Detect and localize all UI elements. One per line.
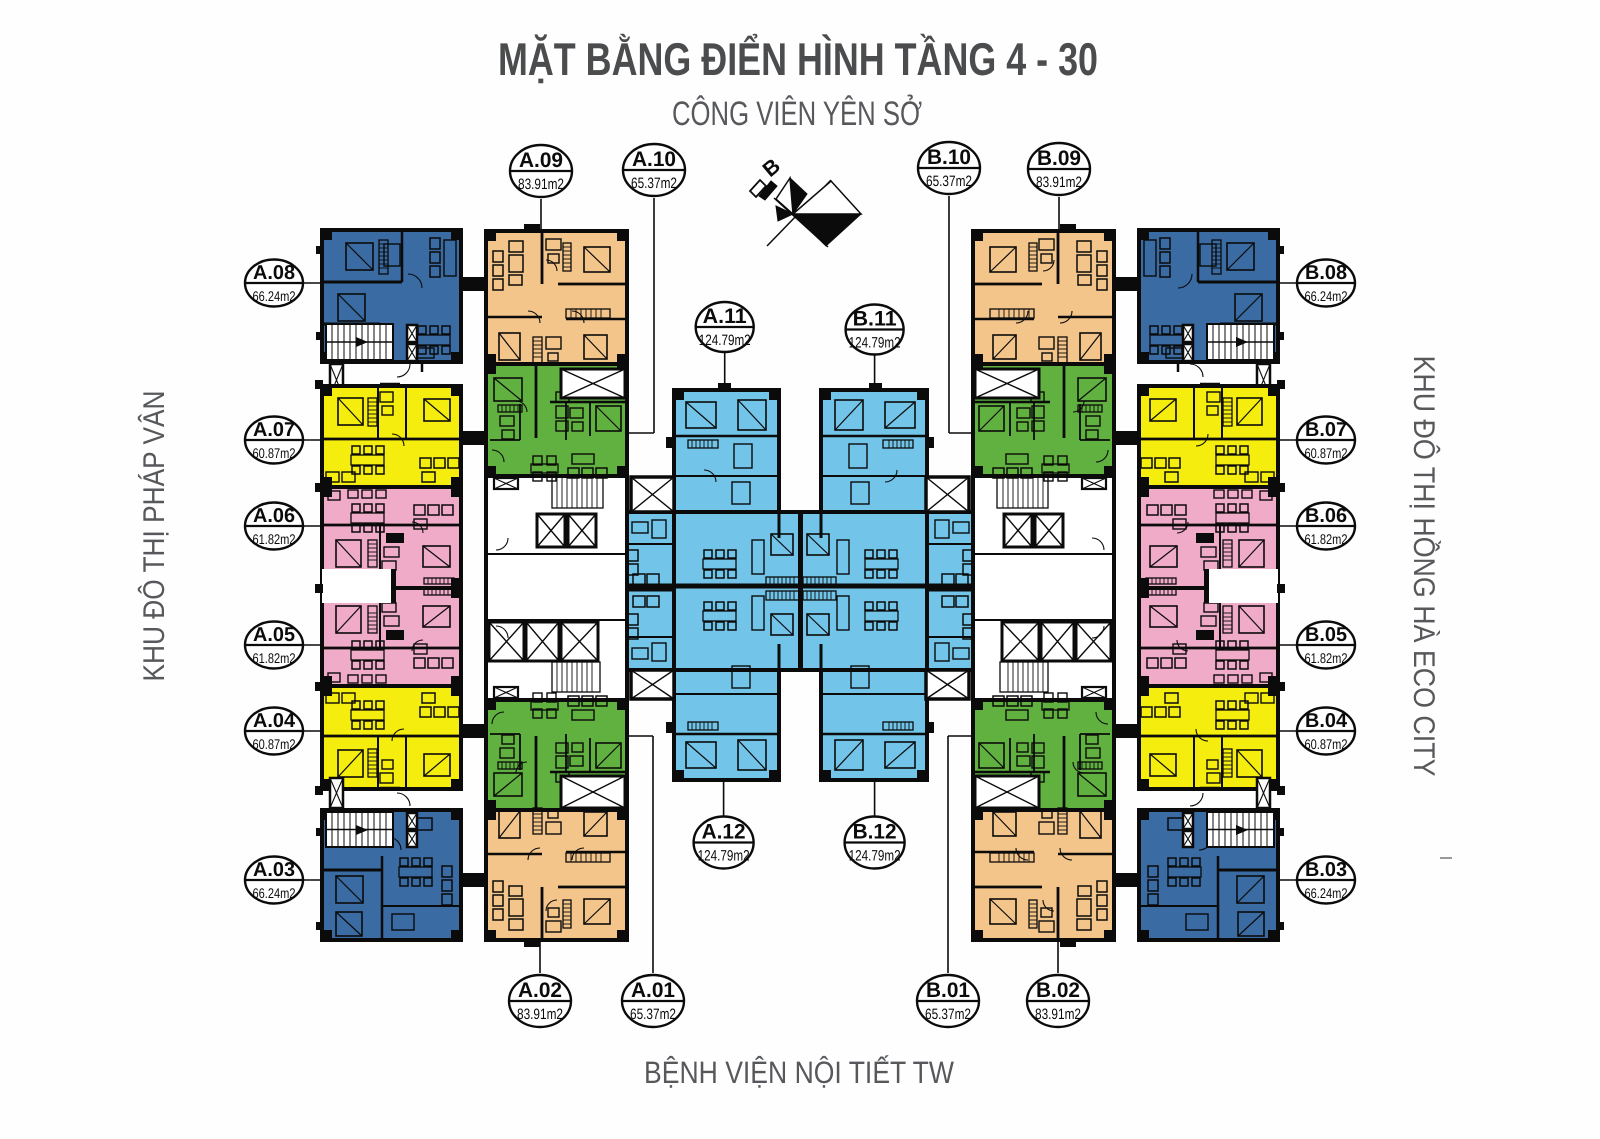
svg-text:83.91m2: 83.91m2 [517, 1006, 563, 1023]
svg-text:60.87m2: 60.87m2 [253, 736, 296, 752]
svg-text:61.82m2: 61.82m2 [1305, 650, 1348, 666]
svg-text:A.10: A.10 [632, 148, 676, 171]
svg-text:A.12: A.12 [702, 821, 746, 844]
svg-text:B.06: B.06 [1305, 505, 1347, 527]
svg-text:66.24m2: 66.24m2 [253, 288, 296, 304]
svg-text:B.03: B.03 [1305, 859, 1347, 881]
svg-text:B.12: B.12 [853, 821, 897, 844]
svg-text:83.91m2: 83.91m2 [1036, 174, 1082, 191]
svg-text:B.04: B.04 [1305, 710, 1348, 732]
svg-text:BỆNH VIỆN NỘI TIẾT TW: BỆNH VIỆN NỘI TIẾT TW [644, 1055, 955, 1090]
svg-text:65.37m2: 65.37m2 [631, 175, 677, 192]
svg-text:B.09: B.09 [1037, 147, 1081, 170]
svg-text:124.79m2: 124.79m2 [699, 332, 751, 349]
svg-text:A.02: A.02 [518, 979, 562, 1002]
svg-text:124.79m2: 124.79m2 [849, 335, 901, 352]
svg-text:60.87m2: 60.87m2 [1305, 445, 1348, 461]
svg-text:65.37m2: 65.37m2 [925, 1006, 971, 1023]
svg-text:KHU ĐÔ THỊ PHÁP VÂN: KHU ĐÔ THỊ PHÁP VÂN [137, 391, 171, 682]
svg-text:124.79m2: 124.79m2 [849, 848, 901, 865]
svg-text:83.91m2: 83.91m2 [1035, 1006, 1081, 1023]
svg-text:66.24m2: 66.24m2 [1305, 288, 1348, 304]
svg-text:B.07: B.07 [1305, 419, 1347, 441]
svg-text:A.04: A.04 [253, 710, 296, 732]
svg-text:KHU ĐÔ THỊ HỒNG HÀ ECO CITY: KHU ĐÔ THỊ HỒNG HÀ ECO CITY [1407, 356, 1441, 777]
svg-text:A.08: A.08 [253, 262, 295, 284]
svg-text:A.07: A.07 [253, 419, 295, 441]
svg-text:65.37m2: 65.37m2 [630, 1006, 676, 1023]
svg-text:66.24m2: 66.24m2 [253, 885, 296, 901]
svg-text:B.08: B.08 [1305, 262, 1347, 284]
svg-text:B.10: B.10 [927, 146, 971, 169]
svg-text:A.09: A.09 [519, 149, 563, 172]
svg-text:60.87m2: 60.87m2 [253, 445, 296, 461]
svg-text:61.82m2: 61.82m2 [253, 650, 296, 666]
svg-text:83.91m2: 83.91m2 [518, 176, 564, 193]
svg-text:60.87m2: 60.87m2 [1305, 736, 1348, 752]
svg-text:61.82m2: 61.82m2 [1305, 531, 1348, 547]
svg-text:B.02: B.02 [1036, 979, 1080, 1002]
svg-text:124.79m2: 124.79m2 [698, 848, 750, 865]
svg-text:A.11: A.11 [703, 305, 747, 328]
svg-text:CÔNG VIÊN YÊN SỞ: CÔNG VIÊN YÊN SỞ [672, 94, 922, 133]
svg-text:B.05: B.05 [1305, 624, 1347, 646]
svg-text:B.01: B.01 [926, 979, 970, 1002]
svg-text:66.24m2: 66.24m2 [1305, 885, 1348, 901]
svg-text:61.82m2: 61.82m2 [253, 531, 296, 547]
svg-text:A.01: A.01 [631, 979, 675, 1002]
svg-text:65.37m2: 65.37m2 [926, 173, 972, 190]
svg-text:MẶT BẰNG ĐIỂN HÌNH TẦNG 4 - 30: MẶT BẰNG ĐIỂN HÌNH TẦNG 4 - 30 [498, 33, 1098, 85]
svg-text:A.06: A.06 [253, 505, 295, 527]
svg-text:A.05: A.05 [253, 624, 295, 646]
svg-text:B.11: B.11 [853, 308, 897, 331]
svg-text:A.03: A.03 [253, 859, 295, 881]
